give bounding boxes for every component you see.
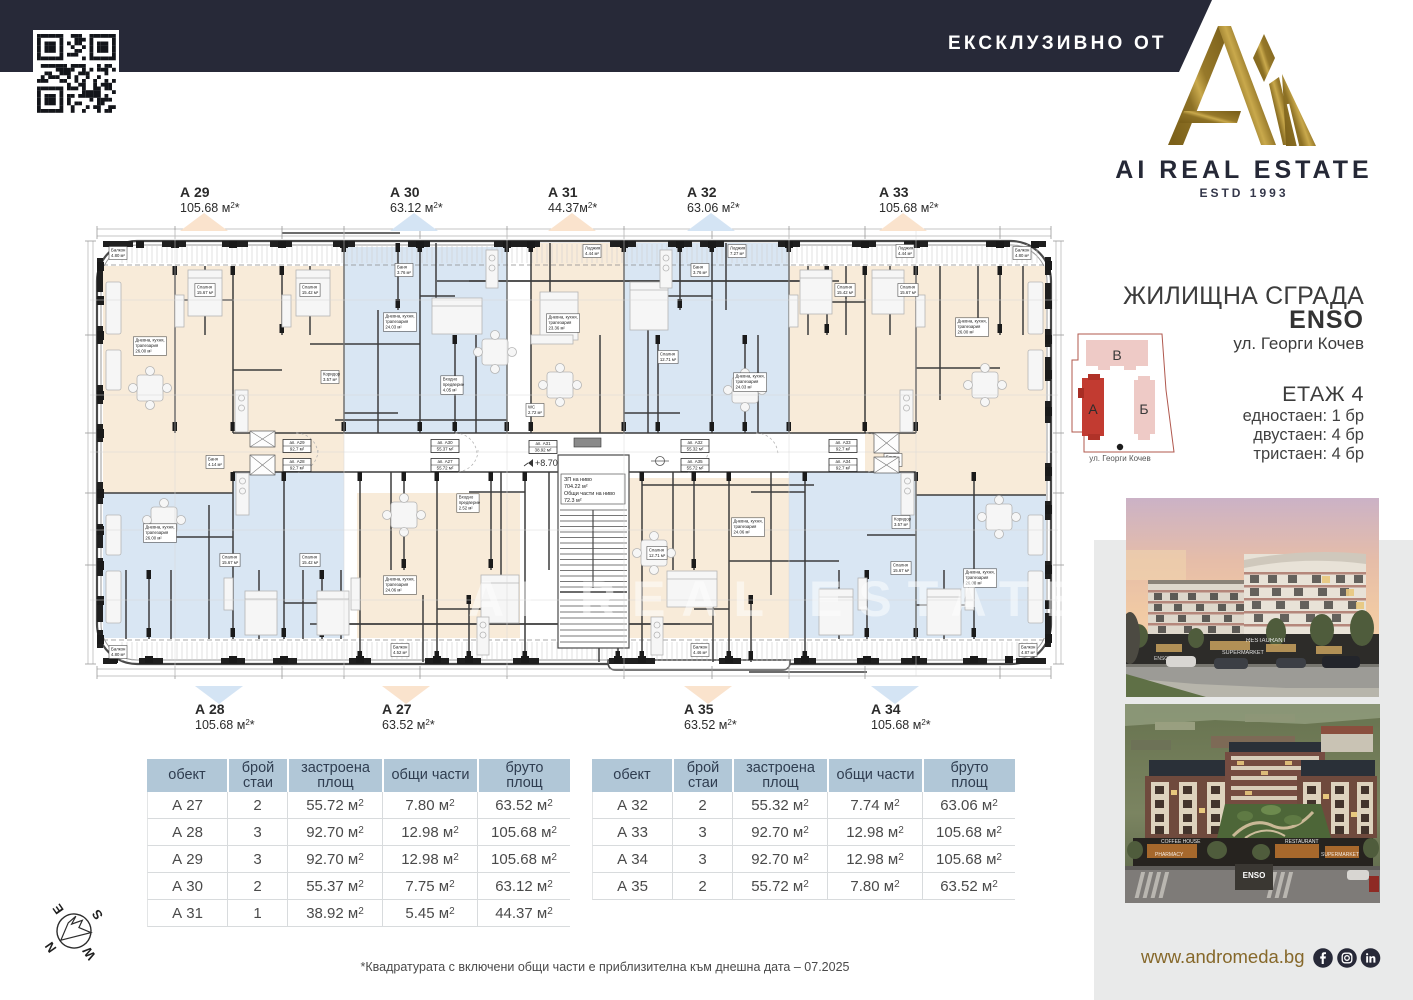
svg-text:ап. А30: ап. А30 bbox=[437, 440, 453, 445]
svg-text:Входно: Входно bbox=[459, 495, 474, 500]
svg-text:Спалня: Спалня bbox=[302, 284, 318, 289]
svg-text:15.42 м²: 15.42 м² bbox=[302, 560, 319, 565]
svg-text:Баня: Баня bbox=[208, 456, 219, 461]
svg-text:55.72 м²: 55.72 м² bbox=[687, 466, 704, 471]
svg-text:4.52 м²: 4.52 м² bbox=[393, 650, 408, 655]
svg-text:15.42 м²: 15.42 м² bbox=[837, 290, 854, 295]
svg-text:72.3 м²: 72.3 м² bbox=[564, 498, 582, 504]
svg-text:ап. А34: ап. А34 bbox=[835, 459, 851, 464]
svg-text:трапезария: трапезария bbox=[385, 319, 409, 324]
svg-text:Спалня: Спалня bbox=[900, 284, 916, 289]
svg-text:Дневна, кухня,: Дневна, кухня, bbox=[736, 374, 765, 379]
svg-text:3.57 м²: 3.57 м² bbox=[323, 377, 338, 382]
svg-text:SUPERMARKET: SUPERMARKET bbox=[1222, 650, 1265, 656]
svg-text:4.80 м²: 4.80 м² bbox=[111, 253, 126, 258]
svg-text:4.46 м²: 4.46 м² bbox=[693, 650, 708, 655]
svg-text:ап. А29: ап. А29 bbox=[289, 440, 305, 445]
svg-text:3.76 м²: 3.76 м² bbox=[397, 270, 412, 275]
svg-text:3.76 м²: 3.76 м² bbox=[693, 270, 708, 275]
svg-text:4.44 м²: 4.44 м² bbox=[898, 251, 913, 256]
svg-text:26.00 м²: 26.00 м² bbox=[135, 349, 152, 354]
svg-text:55.72 м²: 55.72 м² bbox=[437, 466, 454, 471]
svg-text:Спалня: Спалня bbox=[197, 284, 213, 289]
svg-text:ул. Георги Кочев: ул. Георги Кочев bbox=[1089, 454, 1151, 463]
svg-text:4.80 м²: 4.80 м² bbox=[1015, 253, 1030, 258]
svg-text:Дневна, кухня,: Дневна, кухня, bbox=[385, 577, 414, 582]
svg-text:3.57 м²: 3.57 м² bbox=[894, 522, 909, 527]
svg-text:Дневна, кухня,: Дневна, кухня, bbox=[135, 338, 164, 343]
svg-text:+8.70: +8.70 bbox=[535, 458, 558, 468]
svg-text:Лоджия: Лоджия bbox=[730, 245, 746, 250]
svg-text:предверие: предверие bbox=[443, 382, 465, 387]
svg-text:Балкон: Балкон bbox=[693, 644, 708, 649]
svg-text:15.67 м²: 15.67 м² bbox=[197, 290, 214, 295]
svg-text:4.05 м²: 4.05 м² bbox=[443, 388, 458, 393]
svg-text:Б: Б bbox=[1139, 401, 1148, 417]
svg-text:COFFEE HOUSE: COFFEE HOUSE bbox=[1161, 839, 1201, 845]
svg-text:Балкон: Балкон bbox=[111, 646, 126, 651]
svg-text:15.67 м²: 15.67 м² bbox=[900, 290, 917, 295]
svg-text:12.71 м²: 12.71 м² bbox=[649, 553, 666, 558]
svg-text:Спалня: Спалня bbox=[893, 562, 909, 567]
svg-text:PHARMACY: PHARMACY bbox=[1155, 852, 1184, 858]
svg-text:26.00 м²: 26.00 м² bbox=[958, 330, 975, 335]
svg-text:E: E bbox=[49, 901, 66, 917]
svg-text:24.06 м²: 24.06 м² bbox=[385, 588, 402, 593]
svg-text:92.7 м²: 92.7 м² bbox=[290, 466, 305, 471]
svg-text:RESTAURANT: RESTAURANT bbox=[1246, 638, 1287, 644]
svg-text:12.71 м²: 12.71 м² bbox=[660, 357, 677, 362]
svg-text:Коридор: Коридор bbox=[323, 371, 341, 376]
svg-text:ап. А31: ап. А31 bbox=[535, 441, 551, 446]
svg-text:4.14 м²: 4.14 м² bbox=[208, 462, 223, 467]
svg-text:ЗП на ниво: ЗП на ниво bbox=[564, 477, 592, 483]
svg-text:15.42 м²: 15.42 м² bbox=[302, 290, 319, 295]
svg-text:4.44 м²: 4.44 м² bbox=[585, 251, 600, 256]
svg-text:92.7 м²: 92.7 м² bbox=[290, 447, 305, 452]
svg-text:7.27 м²: 7.27 м² bbox=[730, 251, 745, 256]
svg-text:92.7 м²: 92.7 м² bbox=[836, 447, 851, 452]
svg-text:трапезария: трапезария bbox=[385, 582, 409, 587]
svg-text:трапезария: трапезария bbox=[145, 530, 169, 535]
svg-text:AI REAL ESTATE: AI REAL ESTATE bbox=[468, 571, 1070, 627]
svg-text:2.72 м²: 2.72 м² bbox=[528, 410, 543, 415]
svg-text:Спалня: Спалня bbox=[222, 554, 238, 559]
svg-text:ап. А28: ап. А28 bbox=[289, 459, 305, 464]
svg-text:92.7 м²: 92.7 м² bbox=[836, 466, 851, 471]
svg-text:704.22 м²: 704.22 м² bbox=[564, 484, 588, 490]
svg-text:Спалня: Спалня bbox=[302, 554, 318, 559]
svg-text:Баня: Баня bbox=[693, 264, 704, 269]
svg-text:24.03 м²: 24.03 м² bbox=[385, 325, 402, 330]
svg-text:Спалня: Спалня bbox=[649, 547, 665, 552]
svg-text:ап. А27: ап. А27 bbox=[437, 459, 453, 464]
svg-text:А: А bbox=[1088, 401, 1098, 417]
svg-text:4.87 м²: 4.87 м² bbox=[1021, 650, 1036, 655]
svg-text:26.00 м²: 26.00 м² bbox=[145, 536, 162, 541]
svg-text:Балкон: Балкон bbox=[393, 644, 408, 649]
svg-text:23.36 м²: 23.36 м² bbox=[549, 326, 566, 331]
svg-text:WC: WC bbox=[528, 404, 535, 409]
svg-text:55.32 м²: 55.32 м² bbox=[687, 447, 704, 452]
svg-text:трапезария: трапезария bbox=[736, 379, 760, 384]
svg-text:55.37 м²: 55.37 м² bbox=[437, 447, 454, 452]
svg-text:Входно: Входно bbox=[443, 377, 458, 382]
svg-text:Дневна, кухня,: Дневна, кухня, bbox=[958, 319, 987, 324]
svg-text:трапезария: трапезария bbox=[135, 343, 159, 348]
svg-text:предверие: предверие bbox=[459, 500, 481, 505]
svg-text:RESTAURANT: RESTAURANT bbox=[1285, 839, 1319, 845]
svg-text:4.80 м²: 4.80 м² bbox=[111, 652, 126, 657]
svg-text:ENSO: ENSO bbox=[1243, 871, 1266, 880]
svg-text:Дневна, кухня,: Дневна, кухня, bbox=[734, 519, 763, 524]
svg-text:Лоджия: Лоджия bbox=[898, 245, 914, 250]
svg-text:ап. А33: ап. А33 bbox=[835, 440, 851, 445]
svg-text:Общи части на ниво: Общи части на ниво bbox=[564, 491, 615, 497]
svg-text:Дневна, кухня,: Дневна, кухня, bbox=[549, 315, 578, 320]
svg-text:S: S bbox=[89, 907, 106, 923]
svg-text:15.67 м²: 15.67 м² bbox=[222, 560, 239, 565]
svg-text:трапезария: трапезария bbox=[958, 324, 982, 329]
svg-text:Балкон: Балкон bbox=[1015, 247, 1030, 252]
svg-text:ап. А32: ап. А32 bbox=[687, 440, 703, 445]
svg-text:Дневна, кухня,: Дневна, кухня, bbox=[145, 525, 174, 530]
svg-text:2.52 м²: 2.52 м² bbox=[459, 506, 474, 511]
svg-text:Балкон: Балкон bbox=[111, 247, 126, 252]
svg-text:трапезария: трапезария bbox=[549, 320, 573, 325]
svg-text:В: В bbox=[1112, 347, 1121, 363]
svg-text:Спалня: Спалня bbox=[660, 351, 676, 356]
svg-text:Спалня: Спалня bbox=[837, 284, 853, 289]
svg-text:трапезария: трапезария bbox=[734, 524, 758, 529]
svg-text:Лоджия: Лоджия bbox=[585, 245, 601, 250]
svg-text:Балкон: Балкон bbox=[1021, 644, 1036, 649]
svg-text:Баня: Баня bbox=[397, 264, 408, 269]
svg-text:24.03 м²: 24.03 м² bbox=[736, 385, 753, 390]
svg-text:38.92 м²: 38.92 м² bbox=[535, 448, 552, 453]
svg-text:N: N bbox=[42, 939, 60, 955]
svg-text:SUPERMARKET: SUPERMARKET bbox=[1321, 852, 1359, 858]
svg-text:Коридор: Коридор bbox=[894, 516, 912, 521]
svg-text:24.06 м²: 24.06 м² bbox=[734, 530, 751, 535]
svg-text:ап. А35: ап. А35 bbox=[687, 459, 703, 464]
svg-text:Дневна, кухня,: Дневна, кухня, bbox=[385, 314, 414, 319]
